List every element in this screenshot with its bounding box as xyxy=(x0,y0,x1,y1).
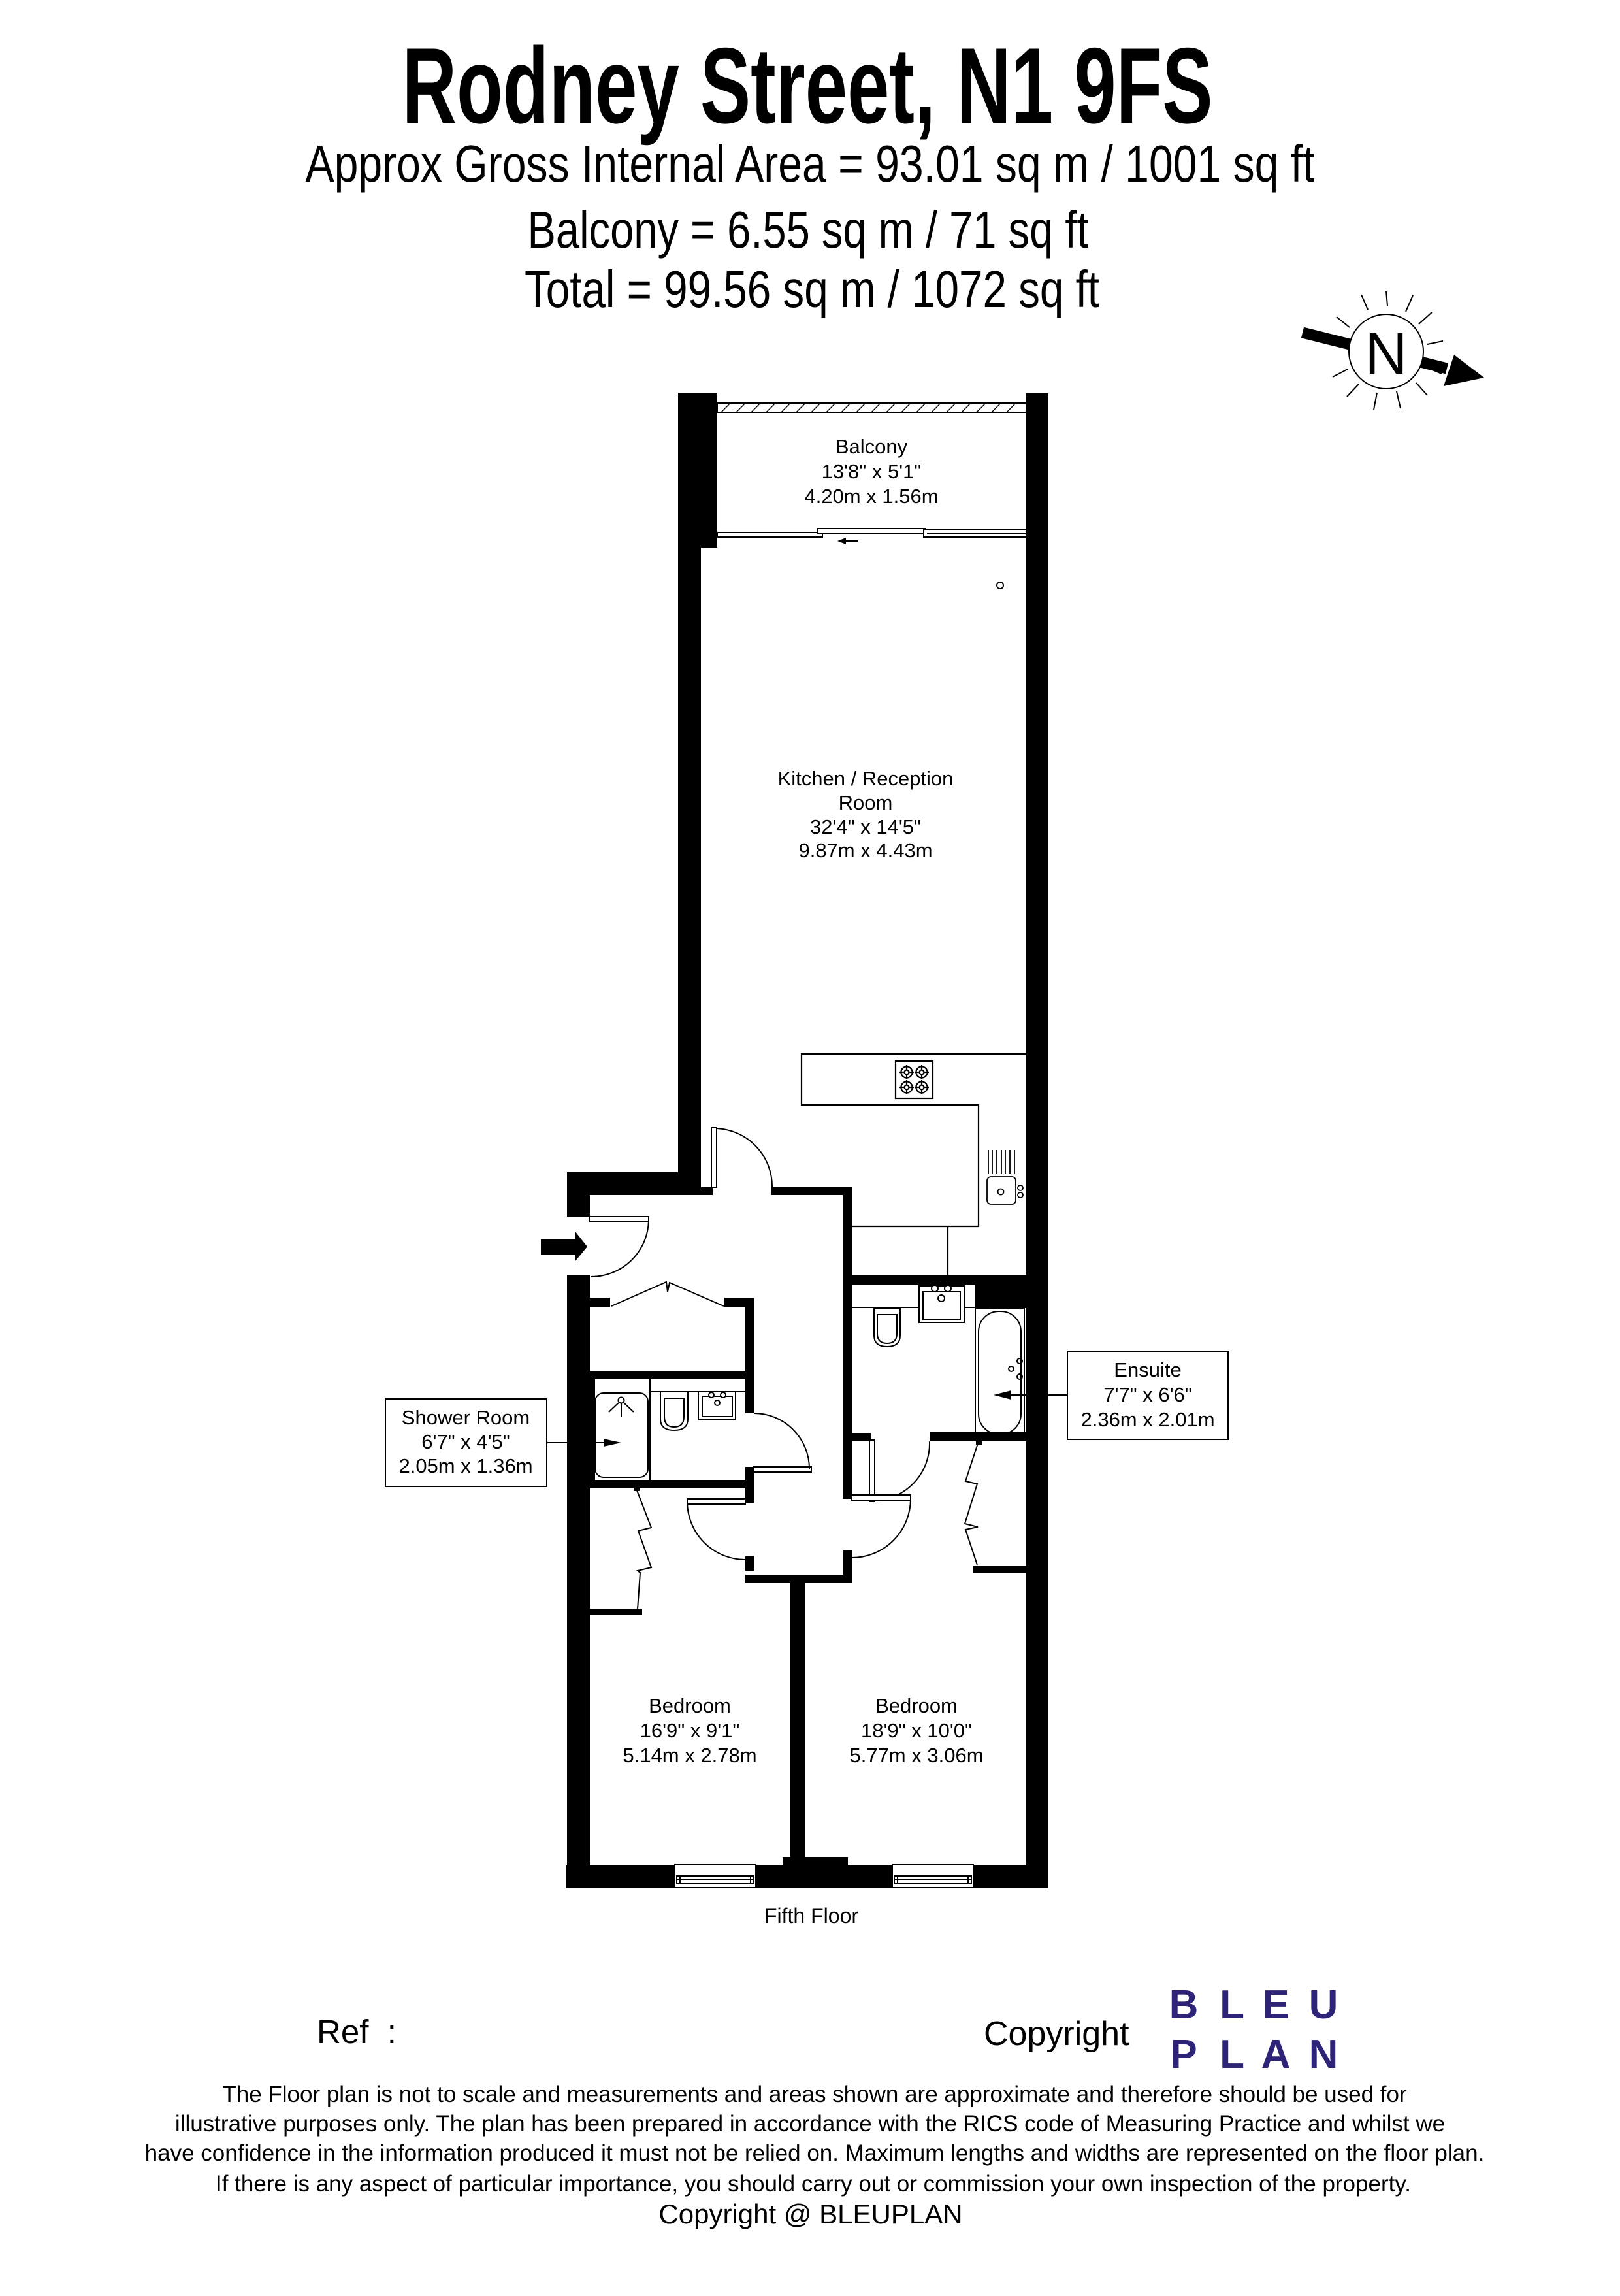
svg-text:The Floor plan is not to scale: The Floor plan is not to scale and measu… xyxy=(222,2082,1407,2107)
svg-text:Shower Room: Shower Room xyxy=(402,1406,530,1429)
svg-text:illustrative purposes only. Th: illustrative purposes only. The plan has… xyxy=(175,2111,1445,2137)
svg-text:Kitchen / Reception: Kitchen / Reception xyxy=(778,767,954,790)
svg-text:B: B xyxy=(1169,1982,1199,2027)
svg-text:N: N xyxy=(1309,2032,1338,2077)
svg-text:18'9" x 10'0": 18'9" x 10'0" xyxy=(861,1719,972,1742)
svg-text:Approx Gross Internal Area = 9: Approx Gross Internal Area = 93.01 sq m … xyxy=(306,135,1315,193)
svg-text:P: P xyxy=(1170,2032,1197,2077)
svg-text:2.05m x 1.36m: 2.05m x 1.36m xyxy=(398,1454,532,1477)
svg-text:Bedroom: Bedroom xyxy=(875,1694,958,1717)
svg-text:9.87m x 4.43m: 9.87m x 4.43m xyxy=(798,839,932,862)
svg-text:Bedroom: Bedroom xyxy=(649,1694,731,1717)
svg-text:L: L xyxy=(1220,2032,1244,2077)
svg-text:Balcony: Balcony xyxy=(835,435,908,458)
svg-text:Copyright @ BLEUPLAN: Copyright @ BLEUPLAN xyxy=(658,2199,962,2229)
svg-text:If there is any aspect of part: If there is any aspect of particular imp… xyxy=(216,2171,1411,2197)
svg-text:have confidence in the informa: have confidence in the information produ… xyxy=(145,2140,1485,2166)
svg-text:A: A xyxy=(1261,2032,1291,2077)
svg-text:32'4" x 14'5": 32'4" x 14'5" xyxy=(810,815,921,838)
svg-text:E: E xyxy=(1262,1982,1289,2027)
svg-text:Ref :: Ref : xyxy=(317,2013,397,2050)
svg-text:Ensuite: Ensuite xyxy=(1114,1358,1181,1381)
svg-text:16'9" x 9'1": 16'9" x 9'1" xyxy=(640,1719,740,1742)
svg-text:U: U xyxy=(1309,1982,1338,2027)
svg-text:7'7" x 6'6": 7'7" x 6'6" xyxy=(1103,1383,1192,1406)
svg-text:N: N xyxy=(1365,321,1408,387)
svg-text:13'8" x 5'1": 13'8" x 5'1" xyxy=(822,460,922,483)
svg-text:5.77m x 3.06m: 5.77m x 3.06m xyxy=(849,1744,983,1767)
svg-text:Room: Room xyxy=(839,791,893,814)
svg-text:2.36m x 2.01m: 2.36m x 2.01m xyxy=(1080,1408,1214,1431)
svg-text:6'7" x 4'5": 6'7" x 4'5" xyxy=(421,1430,510,1453)
svg-text:Fifth Floor: Fifth Floor xyxy=(764,1904,858,1927)
svg-text:L: L xyxy=(1220,1982,1244,2027)
svg-text:5.14m x 2.78m: 5.14m x 2.78m xyxy=(623,1744,756,1767)
svg-text:Rodney Street, N1 9FS: Rodney Street, N1 9FS xyxy=(402,25,1213,146)
svg-text:Copyright: Copyright xyxy=(984,2015,1129,2053)
svg-text:4.20m x 1.56m: 4.20m x 1.56m xyxy=(804,485,938,508)
svg-text:Balcony = 6.55 sq m / 71 sq ft: Balcony = 6.55 sq m / 71 sq ft xyxy=(528,201,1089,259)
svg-text:Total = 99.56 sq m / 1072 sq f: Total = 99.56 sq m / 1072 sq ft xyxy=(525,260,1099,318)
